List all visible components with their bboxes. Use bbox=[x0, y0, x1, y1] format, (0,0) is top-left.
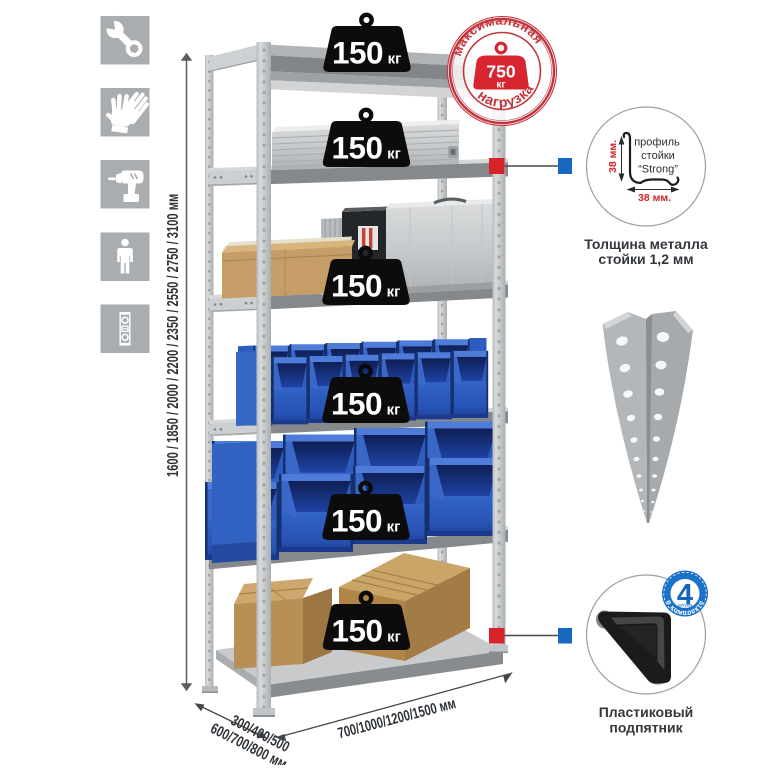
svg-text:Толщина металла: Толщина металла bbox=[584, 236, 708, 252]
svg-text:38 мм.: 38 мм. bbox=[638, 192, 671, 204]
svg-text:“Strong”: “Strong” bbox=[638, 164, 678, 176]
svg-text:1600 / 1850 / 2000 / 2200 / 23: 1600 / 1850 / 2000 / 2200 / 2350 / 2550 … bbox=[164, 194, 181, 477]
svg-text:подпятник: подпятник bbox=[609, 720, 683, 736]
svg-text:профиль: профиль bbox=[634, 137, 680, 149]
svg-text:стойки 1,2 мм: стойки 1,2 мм bbox=[598, 251, 693, 267]
svg-text:штуки: штуки bbox=[678, 603, 692, 608]
svg-text:38 мм.: 38 мм. bbox=[607, 140, 619, 173]
svg-text:750: 750 bbox=[486, 62, 515, 82]
svg-text:кг: кг bbox=[496, 80, 505, 91]
svg-text:Пластиковый: Пластиковый bbox=[599, 704, 694, 720]
svg-text:700/1000/1200/1500 мм: 700/1000/1200/1500 мм bbox=[336, 694, 458, 741]
svg-text:стойки: стойки bbox=[641, 150, 675, 162]
